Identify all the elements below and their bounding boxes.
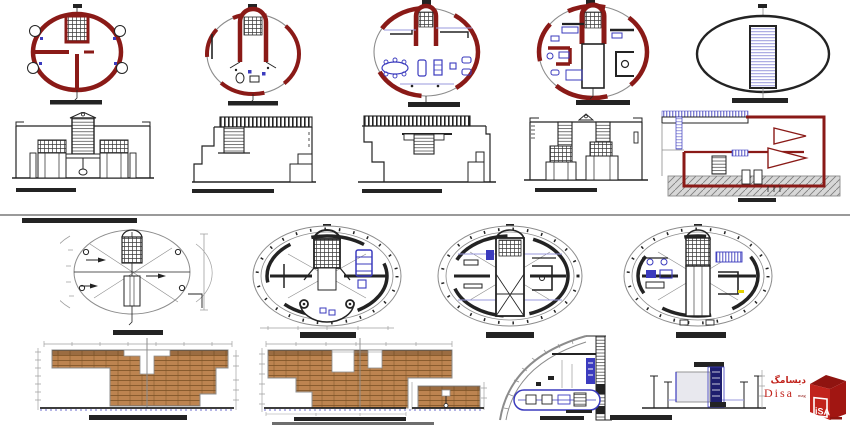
section-5-red xyxy=(654,106,848,204)
plan-circular-8 xyxy=(434,224,588,340)
elevation-brick-2 xyxy=(256,336,490,425)
section-1-drawing xyxy=(8,112,158,196)
scale-bar xyxy=(535,188,597,192)
plan-circular-3-drawing xyxy=(360,0,494,110)
plan-circular-7-drawing xyxy=(248,224,408,340)
scale-bar xyxy=(732,98,788,103)
elevation-brick-1 xyxy=(28,336,246,422)
disa-cube-logo-icon: iSA xyxy=(810,375,846,420)
scale-bar xyxy=(676,332,726,338)
elevation-brick-2-drawing xyxy=(256,336,490,425)
plan-circular-3 xyxy=(360,0,494,110)
elevation-brick-1-drawing xyxy=(28,336,246,422)
dome-section xyxy=(492,330,620,425)
section-1 xyxy=(8,112,158,196)
logo-suffix-text: mag xyxy=(798,393,806,398)
plan-circular-5-roof xyxy=(686,4,844,106)
divider-title-bar xyxy=(22,218,137,223)
section-4 xyxy=(522,112,650,196)
plan-circular-6-drawing xyxy=(60,226,218,338)
scale-bar xyxy=(610,415,672,420)
section-2-drawing xyxy=(188,112,320,196)
logo-cube-letters: iSA xyxy=(815,406,830,418)
detail-section xyxy=(608,352,770,424)
scale-bar xyxy=(192,189,274,193)
plan-circular-5-drawing xyxy=(686,4,844,106)
plan-circular-1 xyxy=(12,4,144,108)
logo-brand-text: Disa xyxy=(764,386,794,400)
scale-bar-upper xyxy=(566,410,592,413)
scale-bar xyxy=(738,198,776,202)
detail-section-drawing xyxy=(608,352,770,424)
plan-circular-6 xyxy=(60,226,218,338)
scale-bar xyxy=(50,100,102,105)
scale-bar xyxy=(16,188,76,192)
section-4-drawing xyxy=(522,112,650,196)
plan-circular-2-drawing xyxy=(192,4,316,108)
scale-bar xyxy=(362,189,442,193)
scale-bar xyxy=(228,101,278,106)
scale-bar xyxy=(89,415,187,420)
plan-circular-2 xyxy=(192,4,316,108)
plan-circular-1-drawing xyxy=(12,4,144,108)
scale-bar xyxy=(294,417,406,421)
section-5-drawing xyxy=(654,106,848,204)
section-3 xyxy=(356,112,498,196)
scale-bar xyxy=(408,102,460,107)
plan-circular-9 xyxy=(620,224,778,340)
dome-section-drawing xyxy=(492,330,620,425)
disa-logo: دیسامگ Disa mag iSA xyxy=(760,370,848,424)
disa-logo-drawing: دیسامگ Disa mag iSA xyxy=(760,370,848,424)
plan-circular-4 xyxy=(526,0,662,110)
scale-bar xyxy=(540,416,584,420)
plan-circular-4-drawing xyxy=(526,0,662,110)
logo-persian-text: دیسامگ xyxy=(771,374,807,386)
plan-circular-7 xyxy=(248,224,408,340)
scale-bar xyxy=(576,100,630,105)
sheet-divider-line xyxy=(0,214,850,216)
section-2 xyxy=(188,112,320,196)
plan-circular-9-drawing xyxy=(620,224,778,340)
cad-sheet: دیسامگ Disa mag iSA xyxy=(0,0,850,425)
plan-circular-8-drawing xyxy=(434,224,588,340)
scale-bar xyxy=(113,330,163,335)
section-3-drawing xyxy=(356,112,498,196)
